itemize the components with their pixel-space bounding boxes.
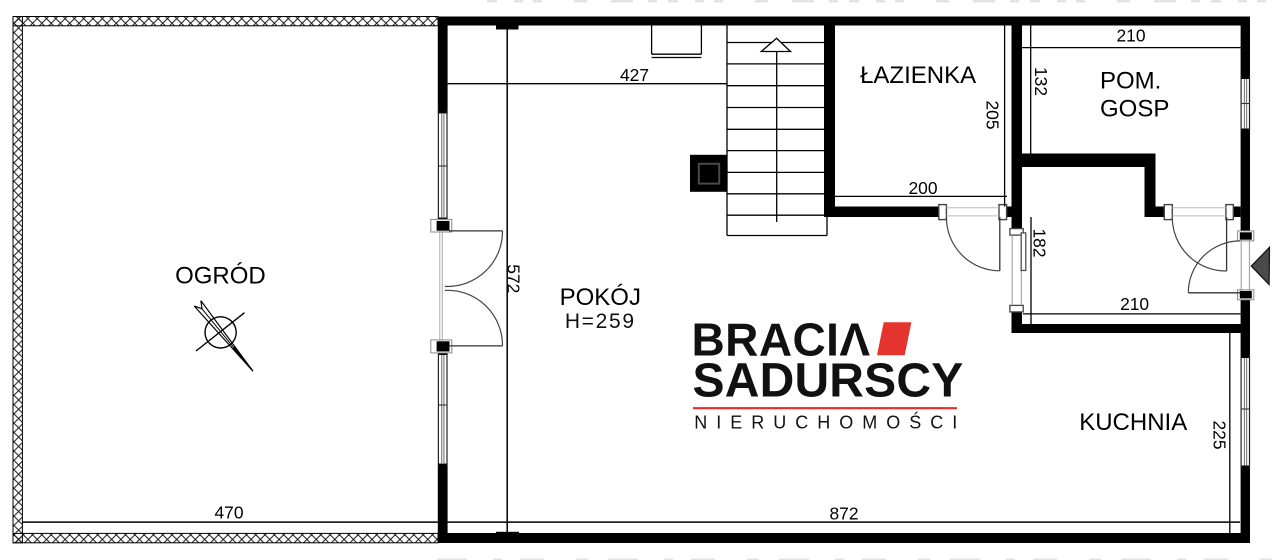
svg-text:ŁAZIENKA: ŁAZIENKA bbox=[860, 62, 976, 89]
svg-text:427: 427 bbox=[620, 65, 649, 85]
svg-text:872: 872 bbox=[829, 504, 858, 524]
svg-text:225: 225 bbox=[1210, 420, 1230, 449]
svg-text:200: 200 bbox=[908, 178, 937, 198]
svg-text:210: 210 bbox=[1120, 294, 1149, 314]
svg-text:H=259: H=259 bbox=[565, 310, 636, 333]
svg-text:210: 210 bbox=[1116, 26, 1145, 46]
svg-text:POKÓJ: POKÓJ bbox=[560, 284, 641, 311]
svg-text:SADURSCY: SADURSCY bbox=[693, 355, 964, 408]
svg-text:182: 182 bbox=[1030, 228, 1050, 257]
svg-text:572: 572 bbox=[504, 264, 524, 293]
svg-text:GOSP: GOSP bbox=[1100, 95, 1169, 122]
svg-text:470: 470 bbox=[214, 503, 243, 523]
svg-text:NIERUCHOMOŚCI: NIERUCHOMOŚCI bbox=[694, 412, 966, 433]
svg-text:132: 132 bbox=[1031, 67, 1051, 96]
svg-text:POM.: POM. bbox=[1100, 68, 1161, 95]
svg-text:OGRÓD: OGRÓD bbox=[175, 263, 266, 290]
svg-text:KUCHNIA: KUCHNIA bbox=[1079, 409, 1187, 436]
svg-text:205: 205 bbox=[983, 100, 1003, 129]
